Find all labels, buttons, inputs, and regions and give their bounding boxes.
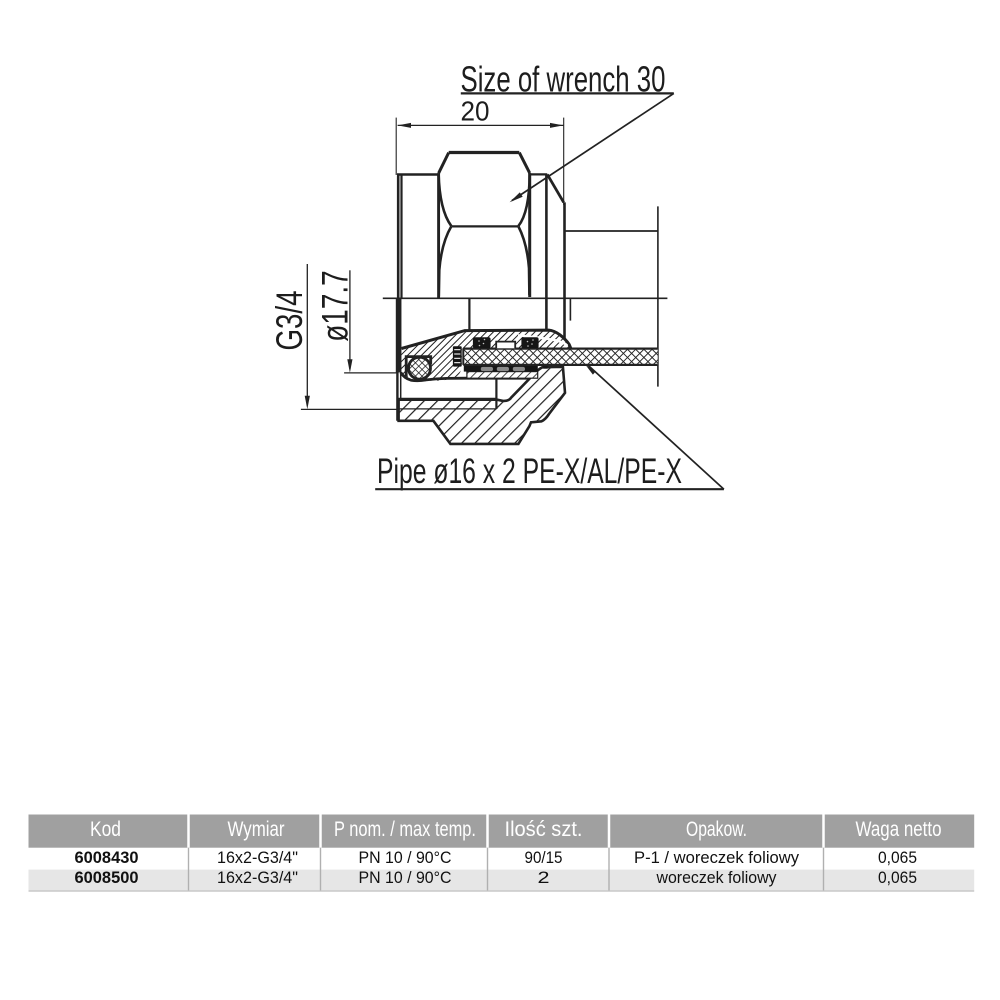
svg-text:2: 2	[538, 869, 550, 887]
svg-text:PN 10 / 90°C: PN 10 / 90°C	[359, 849, 452, 867]
svg-text:Waga netto: Waga netto	[856, 817, 942, 841]
svg-text:0,065: 0,065	[878, 869, 917, 887]
svg-text:P nom. / max temp.: P nom. / max temp.	[334, 817, 476, 841]
svg-text:Wymiar: Wymiar	[228, 817, 285, 841]
svg-text:G3/4: G3/4	[269, 291, 310, 351]
svg-text:6008430: 6008430	[75, 849, 139, 867]
svg-text:PN 10 / 90°C: PN 10 / 90°C	[359, 869, 452, 887]
svg-text:20: 20	[461, 96, 490, 127]
svg-text:6008500: 6008500	[75, 869, 139, 887]
svg-text:Pipe ø16 x 2 PE-X/AL/PE-X: Pipe ø16 x 2 PE-X/AL/PE-X	[377, 452, 682, 491]
svg-text:0,065: 0,065	[878, 849, 917, 867]
svg-text:16x2-G3/4": 16x2-G3/4"	[217, 849, 298, 867]
svg-text:Kod: Kod	[90, 817, 121, 841]
svg-text:Ilość szt.: Ilość szt.	[505, 817, 583, 841]
svg-text:P-1 / woreczek foliowy: P-1 / woreczek foliowy	[634, 849, 800, 867]
svg-text:16x2-G3/4": 16x2-G3/4"	[217, 869, 298, 887]
svg-text:Opakow.: Opakow.	[686, 817, 747, 841]
svg-text:woreczek foliowy: woreczek foliowy	[656, 869, 778, 887]
svg-text:90/15: 90/15	[525, 849, 563, 867]
